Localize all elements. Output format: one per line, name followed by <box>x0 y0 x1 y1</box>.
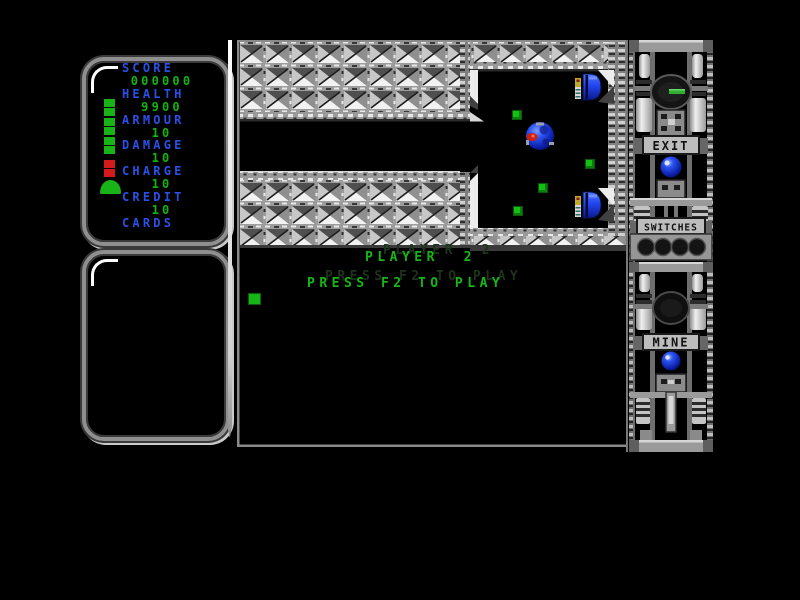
stat-label: CARDS <box>122 217 222 230</box>
prompt-message: PRESS F2 TO PLAY <box>307 276 504 291</box>
health-segment-low <box>104 169 115 177</box>
stat-label: SCORE <box>122 62 222 75</box>
player-ball <box>526 122 554 150</box>
stats-panel: SCORE000000HEALTH9900ARMOUR10DAMAGE10CHA… <box>82 57 230 246</box>
switch-dot[interactable] <box>672 239 689 256</box>
connector-box <box>656 374 686 392</box>
connector-box <box>657 110 685 136</box>
stat-label: CREDIT <box>122 191 222 204</box>
pickup-dot <box>513 206 523 216</box>
docked-ship-top <box>575 74 601 100</box>
health-segment <box>104 146 115 154</box>
stat-value: 10 <box>122 204 202 217</box>
secondary-panel <box>82 250 230 441</box>
playfield-left-bezel <box>228 40 232 438</box>
health-segment <box>104 108 115 116</box>
scanner-dome <box>651 75 691 109</box>
docked-ship-bottom <box>575 192 601 218</box>
control-panel: EXIT <box>626 40 721 454</box>
panel-foot <box>690 430 702 440</box>
cursor-block <box>248 293 261 305</box>
mine-label: MINE <box>653 336 690 350</box>
connector-box <box>657 180 685 198</box>
thermometer-bulb <box>100 180 121 194</box>
pickup-dot <box>585 159 595 169</box>
exit-label: EXIT <box>653 139 690 153</box>
stat-label: ARMOUR <box>122 114 222 127</box>
mine-orb-button <box>662 352 681 371</box>
exit-orb-button <box>661 157 682 178</box>
panel-shine <box>91 259 118 286</box>
maze-walls <box>240 42 626 251</box>
game-screen: SCORE000000HEALTH9900ARMOUR10DAMAGE10CHA… <box>0 0 800 600</box>
switches-label: SWITCHES <box>644 223 698 234</box>
pickup-dot <box>512 110 522 120</box>
health-segment <box>104 137 115 145</box>
switch-dot[interactable] <box>689 239 706 256</box>
health-segment-low <box>104 160 115 168</box>
switch-dot[interactable] <box>638 239 655 256</box>
playfield: PLAYER 2 PRESS F2 TO PLAY PLAYER 2 PRESS… <box>237 40 626 447</box>
pickup-dot <box>538 183 548 193</box>
health-segment <box>104 99 115 107</box>
player-message: PLAYER 2 <box>365 250 476 265</box>
stat-value: 9900 <box>122 101 202 114</box>
stat-label: HEALTH <box>122 88 222 101</box>
stats-rows: SCORE000000HEALTH9900ARMOUR10DAMAGE10CHA… <box>122 62 222 230</box>
switch-dot[interactable] <box>655 239 672 256</box>
control-panel-art: EXIT <box>626 40 721 454</box>
health-segment <box>104 127 115 135</box>
panel-foot <box>640 430 652 440</box>
health-segment <box>104 118 115 126</box>
panel-shine <box>91 66 118 93</box>
stat-label: CHARGE <box>122 165 222 178</box>
stat-value: 000000 <box>122 75 202 88</box>
stat-label: DAMAGE <box>122 139 222 152</box>
switches-plate: SWITCHES <box>637 218 705 234</box>
